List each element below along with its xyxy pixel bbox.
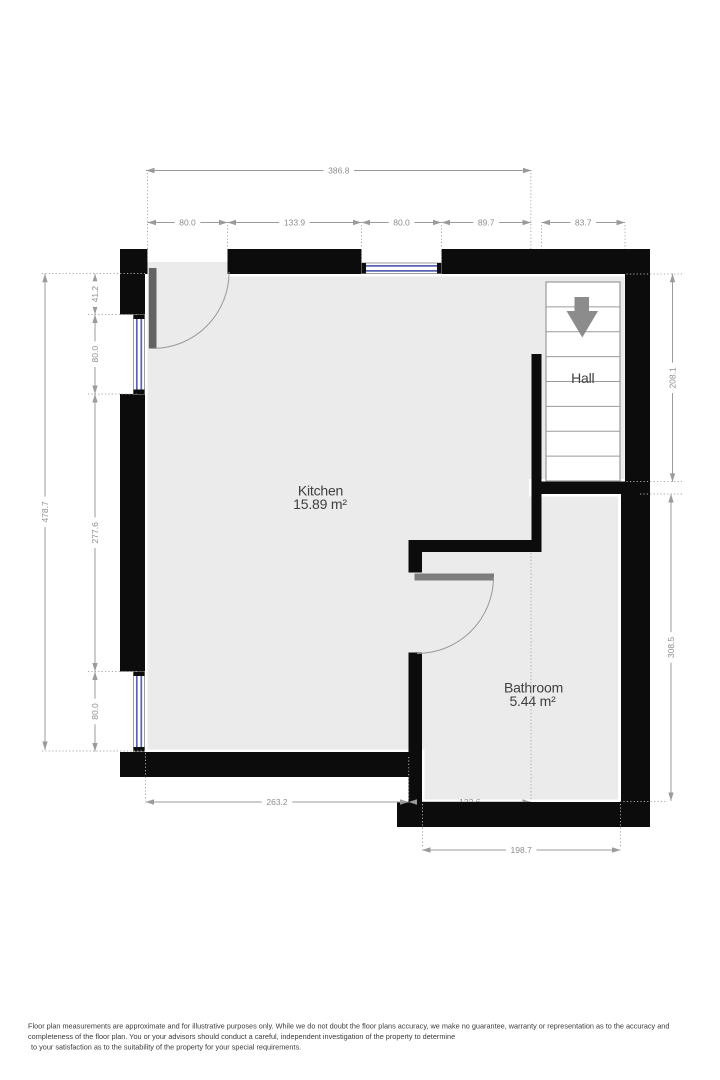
svg-text:5.44 m²: 5.44 m² [509, 693, 556, 709]
svg-text:to your satisfaction as to the: to your satisfaction as to the suitabili… [31, 1043, 301, 1052]
svg-text:263.2: 263.2 [266, 797, 288, 807]
svg-text:80.0: 80.0 [393, 218, 410, 228]
svg-text:41.2: 41.2 [90, 286, 100, 303]
svg-text:308.5: 308.5 [666, 637, 676, 659]
svg-text:15.89 m²: 15.89 m² [293, 496, 347, 512]
svg-text:277.6: 277.6 [90, 522, 100, 544]
svg-text:80.0: 80.0 [179, 218, 196, 228]
svg-text:80.0: 80.0 [90, 703, 100, 720]
svg-text:Floor plan measurements are ap: Floor plan measurements are approximate … [28, 1022, 669, 1031]
svg-text:208.1: 208.1 [668, 367, 678, 389]
svg-text:80.0: 80.0 [90, 346, 100, 363]
svg-text:89.7: 89.7 [478, 218, 495, 228]
svg-text:83.7: 83.7 [575, 218, 592, 228]
svg-text:Hall: Hall [571, 370, 594, 386]
svg-text:133.9: 133.9 [284, 218, 306, 228]
svg-text:198.7: 198.7 [511, 845, 533, 855]
svg-text:386.8: 386.8 [328, 166, 350, 176]
svg-text:completeness of the floor plan: completeness of the floor plan. You or y… [28, 1032, 455, 1041]
svg-text:478.7: 478.7 [40, 501, 50, 523]
